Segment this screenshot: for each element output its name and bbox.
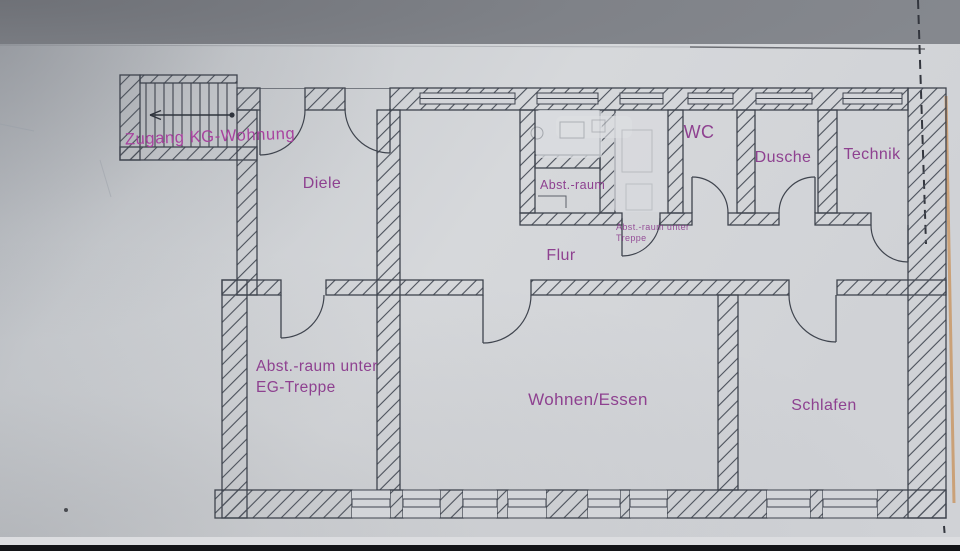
label-abstraum-treppe-line1: Abst.-raum unter [616,222,689,232]
window-symbol [588,490,620,518]
label-flur: Flur [546,247,575,264]
flur-lower-wall [222,280,946,295]
label-dusche: Dusche [755,149,812,166]
label-technik: Technik [843,146,901,163]
window-symbol [630,490,667,518]
bottom-wall-windows [352,490,877,518]
window-symbol [767,490,810,518]
window-symbol [508,490,546,518]
label-wc: WC [684,122,715,142]
window-symbol [463,490,497,518]
floor-plan-photo: Zugang KG-Wohnung Diele WC Dusche Techni… [0,0,960,551]
label-abstraum-eg-line2: EG-Treppe [256,379,336,396]
label-abstraum-eg-line1: Abst.-raum unter [256,358,378,375]
label-wohnen-essen: Wohnen/Essen [528,390,648,409]
paper-speck [64,508,68,512]
window-symbol [352,490,390,518]
label-abstraum-treppe-line2: Treppe [616,233,647,243]
window-symbol [823,490,877,518]
label-schlafen: Schlafen [791,397,856,414]
window-symbol [403,490,440,518]
label-diele: Diele [303,175,341,192]
label-abstraum: Abst.-raum [540,178,605,192]
